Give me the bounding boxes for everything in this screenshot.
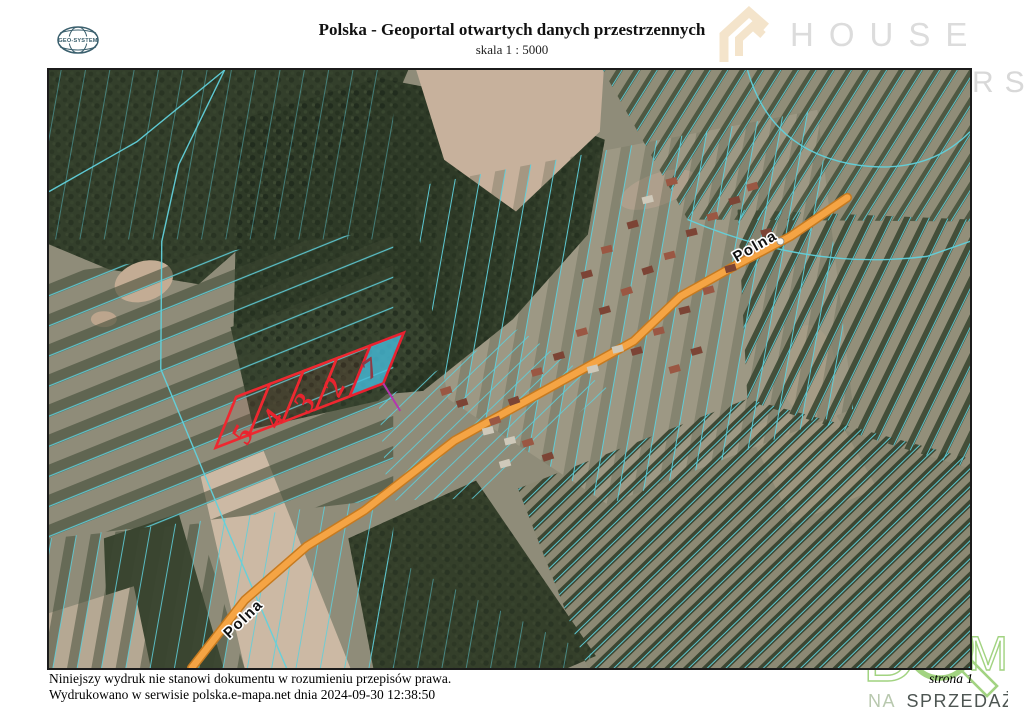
footer-printed-info: Wydrukowano w serwisie polska.e-mapa.net… <box>49 687 435 703</box>
printout-page: GEO-SYSTEM Polska - Geoportal otwartych … <box>0 0 1024 725</box>
house-icon <box>716 5 776 65</box>
map-image: 5 4 3 2 7 Polna Polna <box>47 68 972 670</box>
svg-text:NA SPRZEDAŻ: NA SPRZEDAŻ <box>868 691 1008 711</box>
geo-system-logo-icon: GEO-SYSTEM <box>56 24 100 56</box>
footer-disclaimer: Niniejszy wydruk nie stanowi dokumentu w… <box>49 671 451 687</box>
house-watermark-text: HOUSE <box>790 16 982 54</box>
page-number: strona 1 <box>929 671 973 687</box>
brand-sprzedaz-text: SPRZEDAŻ <box>907 691 1008 711</box>
aerial-map-canvas: 5 4 3 2 7 Polna Polna <box>49 70 970 668</box>
geo-system-logo-text: GEO-SYSTEM <box>58 38 97 44</box>
brokers-watermark-partial-text: RS <box>972 66 1024 100</box>
dom-letter-m: M <box>968 628 1008 681</box>
brand-na-text: NA <box>868 691 895 711</box>
